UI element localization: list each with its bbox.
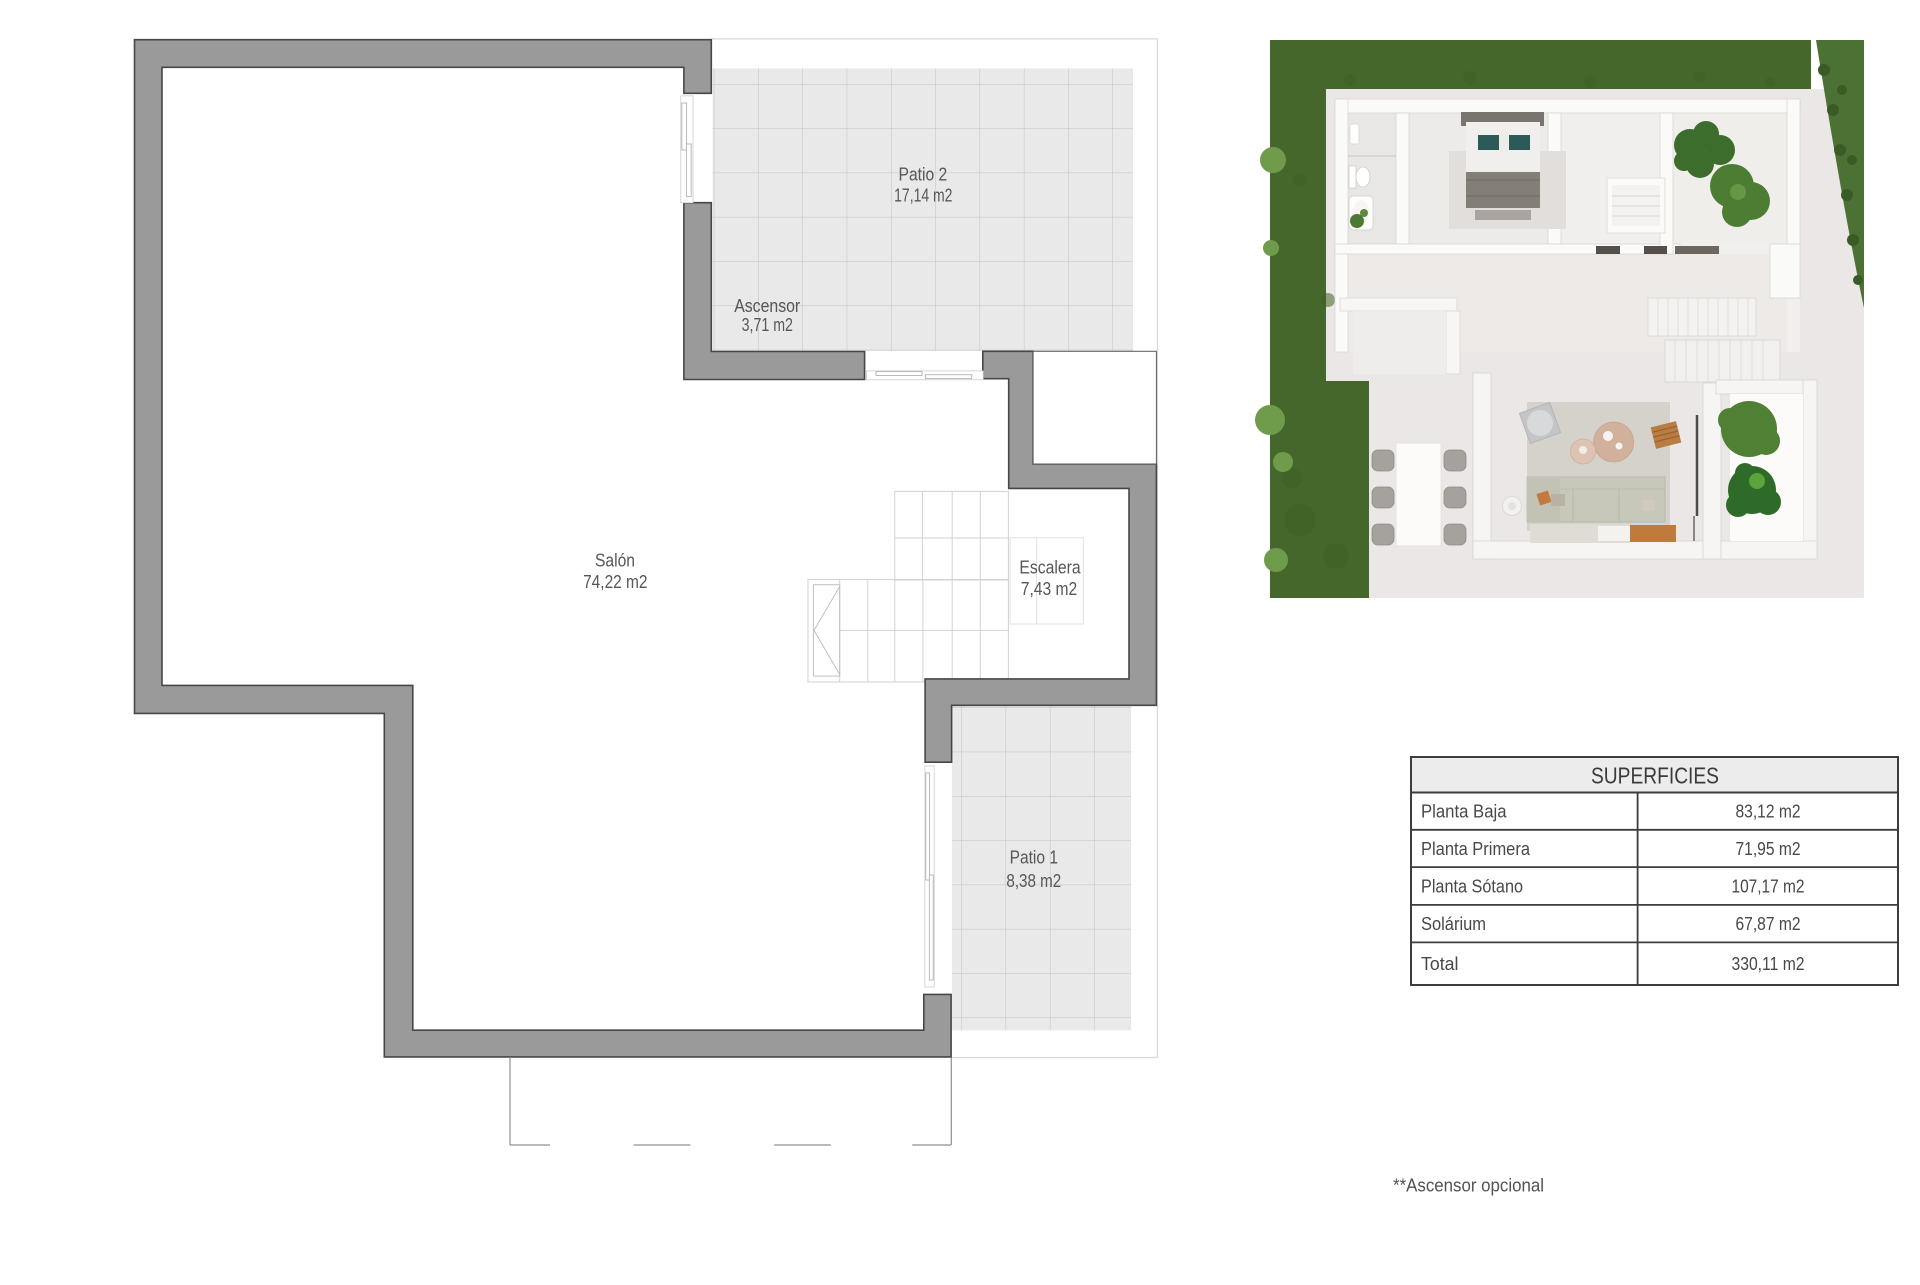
svg-text:Planta Primera: Planta Primera [1421,838,1531,859]
svg-text:SUPERFICIES: SUPERFICIES [1591,763,1719,789]
svg-text:Solárium: Solárium [1421,913,1486,934]
svg-text:7,43 m2: 7,43 m2 [1021,578,1077,599]
svg-text:Ascensor: Ascensor [734,295,800,316]
svg-text:67,87 m2: 67,87 m2 [1736,913,1801,934]
svg-text:71,95 m2: 71,95 m2 [1736,838,1801,859]
svg-text:Total: Total [1421,953,1459,974]
svg-text:330,11 m2: 330,11 m2 [1732,953,1805,974]
svg-text:107,17 m2: 107,17 m2 [1732,875,1805,896]
svg-text:83,12 m2: 83,12 m2 [1736,801,1801,822]
svg-text:17,14 m2: 17,14 m2 [894,184,952,205]
svg-text:74,22 m2: 74,22 m2 [583,571,647,592]
svg-text:**Ascensor opcional: **Ascensor opcional [1393,1175,1544,1196]
svg-text:Escalera: Escalera [1019,557,1081,578]
svg-text:3,71 m2: 3,71 m2 [742,314,793,335]
svg-text:Planta Sótano: Planta Sótano [1421,875,1523,896]
svg-text:Planta Baja: Planta Baja [1421,801,1507,822]
svg-text:8,38 m2: 8,38 m2 [1006,870,1061,891]
svg-text:Patio 1: Patio 1 [1010,847,1058,868]
svg-text:Patio 2: Patio 2 [899,164,948,185]
svg-text:Salón: Salón [595,549,635,570]
